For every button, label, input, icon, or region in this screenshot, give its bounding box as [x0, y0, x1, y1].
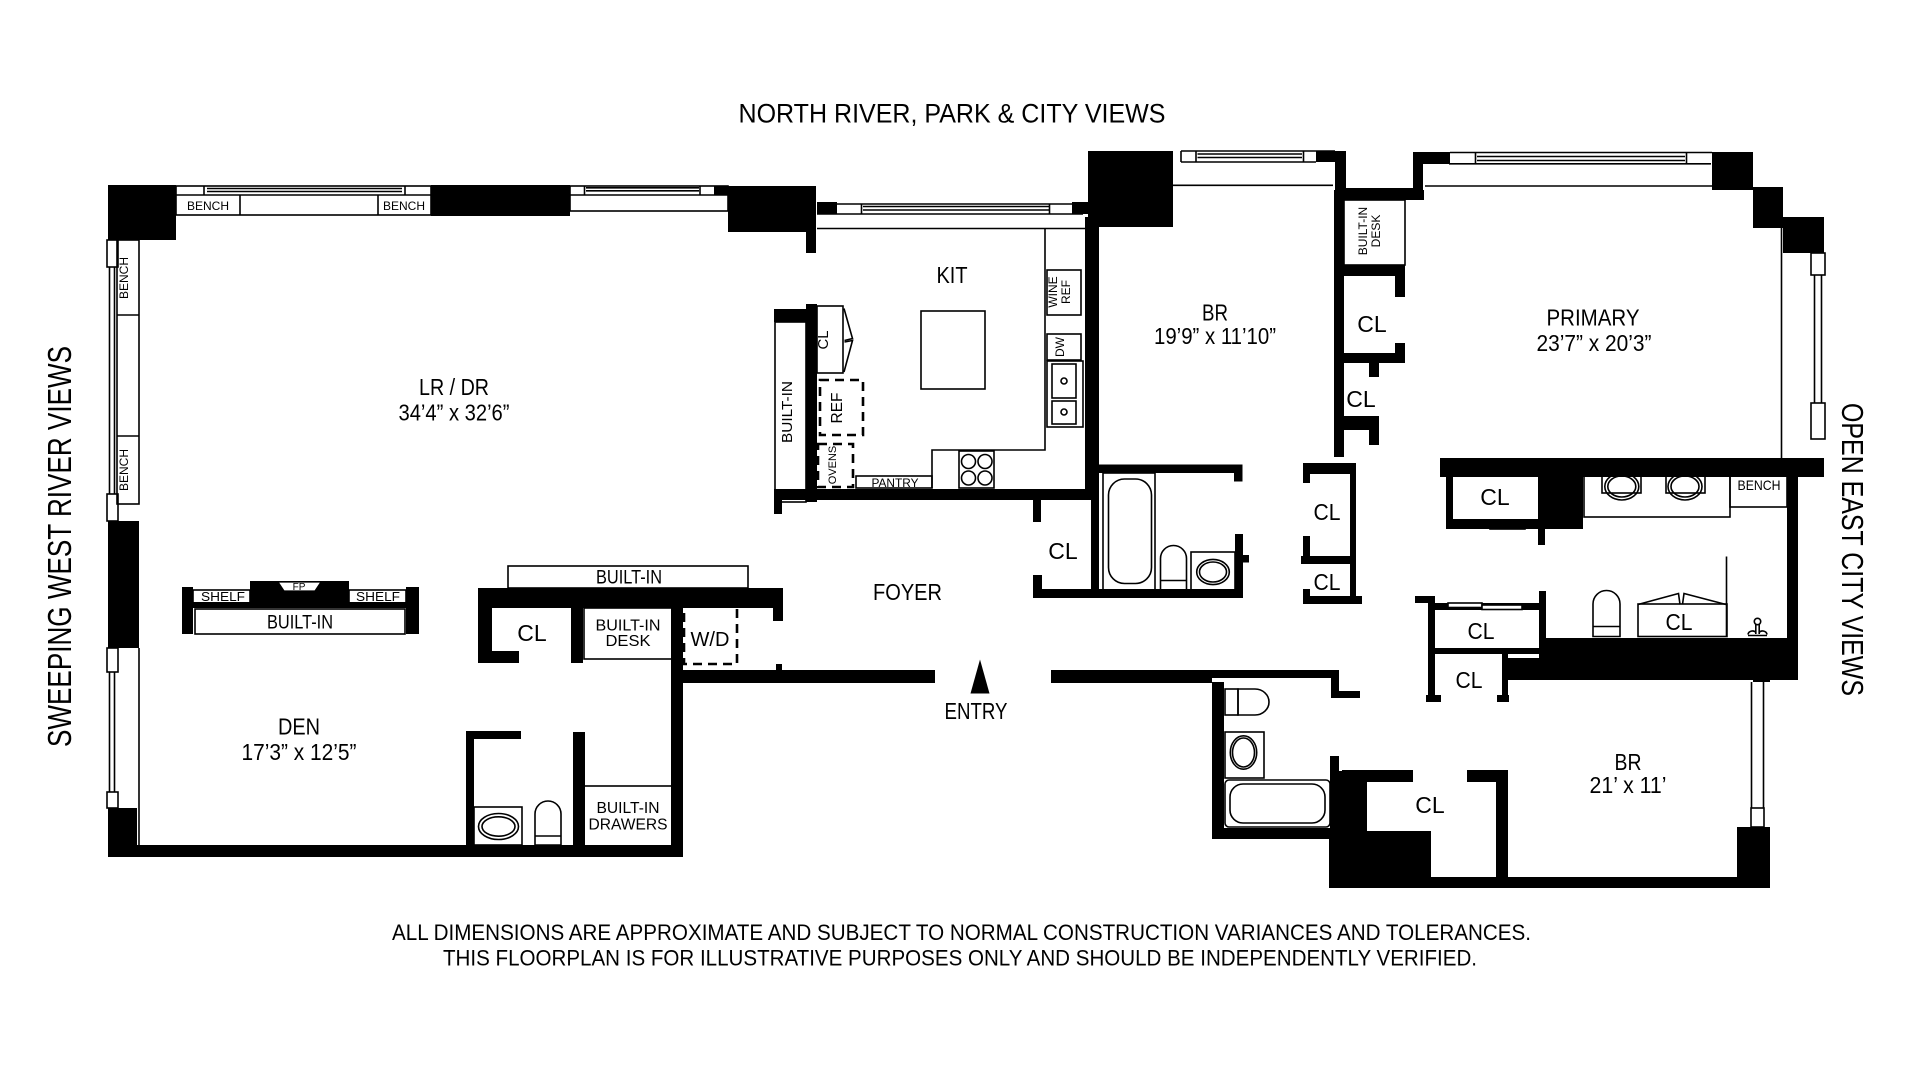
svg-text:ENTRY: ENTRY: [945, 698, 1008, 724]
svg-text:BUILT-IN: BUILT-IN: [267, 613, 333, 634]
svg-text:CL: CL: [1480, 484, 1510, 510]
svg-text:REF: REF: [829, 392, 846, 423]
svg-text:DEN: DEN: [278, 714, 320, 740]
svg-text:BENCH: BENCH: [1738, 477, 1781, 493]
svg-text:BUILT-IN: BUILT-IN: [596, 618, 661, 635]
svg-text:21’ x 11’: 21’ x 11’: [1590, 772, 1667, 798]
svg-text:PANTRY: PANTRY: [872, 478, 919, 490]
svg-text:ALL DIMENSIONS ARE APPROXIMATE: ALL DIMENSIONS ARE APPROXIMATE AND SUBJE…: [392, 920, 1531, 945]
svg-text:CL: CL: [1346, 386, 1376, 412]
svg-text:SWEEPING WEST RIVER VIEWS: SWEEPING WEST RIVER VIEWS: [41, 346, 78, 747]
svg-text:BENCH: BENCH: [187, 199, 229, 213]
svg-text:W/D: W/D: [691, 629, 730, 651]
svg-text:CL: CL: [1048, 538, 1078, 564]
svg-text:BUILT-IN: BUILT-IN: [597, 800, 660, 817]
svg-text:23’7” x 20’3”: 23’7” x 20’3”: [1537, 330, 1652, 356]
svg-text:REF: REF: [1059, 280, 1073, 304]
svg-text:CL: CL: [517, 620, 547, 646]
svg-text:CL: CL: [1456, 667, 1483, 693]
svg-text:BUILT-IN: BUILT-IN: [1356, 207, 1370, 255]
svg-text:CL: CL: [1314, 499, 1341, 525]
svg-text:BENCH: BENCH: [383, 199, 425, 213]
svg-text:SHELF: SHELF: [356, 589, 400, 604]
svg-text:CL: CL: [1666, 609, 1693, 635]
svg-text:17’3” x 12’5”: 17’3” x 12’5”: [242, 739, 357, 765]
svg-text:FOYER: FOYER: [873, 579, 942, 605]
svg-text:DRAWERS: DRAWERS: [589, 817, 668, 834]
svg-text:FP: FP: [293, 582, 306, 593]
svg-text:19’9” x 11’10”: 19’9” x 11’10”: [1154, 323, 1276, 349]
svg-text:NORTH RIVER, PARK & CITY VIEWS: NORTH RIVER, PARK & CITY VIEWS: [739, 99, 1166, 129]
svg-text:CL: CL: [1415, 792, 1445, 818]
svg-text:LR / DR: LR / DR: [419, 374, 489, 400]
svg-text:KIT: KIT: [937, 262, 968, 288]
svg-text:THIS FLOORPLAN IS FOR ILLUSTRA: THIS FLOORPLAN IS FOR ILLUSTRATIVE PURPO…: [443, 946, 1477, 971]
svg-text:CL: CL: [1314, 569, 1341, 595]
svg-text:SHELF: SHELF: [201, 589, 245, 604]
svg-text:BR: BR: [1202, 300, 1228, 326]
svg-text:CL: CL: [816, 331, 832, 350]
svg-text:BUILT-IN: BUILT-IN: [779, 381, 796, 443]
svg-text:BENCH: BENCH: [117, 449, 131, 491]
svg-text:34’4” x 32’6”: 34’4” x 32’6”: [399, 400, 510, 426]
svg-text:OPEN EAST CITY VIEWS: OPEN EAST CITY VIEWS: [1835, 403, 1870, 696]
svg-text:DESK: DESK: [606, 633, 651, 650]
svg-text:CL: CL: [1468, 618, 1495, 644]
svg-text:BUILT-IN: BUILT-IN: [596, 568, 662, 589]
svg-text:BENCH: BENCH: [117, 257, 131, 299]
svg-text:WINE: WINE: [1046, 276, 1060, 307]
svg-text:CL: CL: [1357, 311, 1387, 337]
svg-text:OVENS: OVENS: [827, 446, 839, 485]
svg-text:PRIMARY: PRIMARY: [1547, 305, 1640, 331]
svg-text:DESK: DESK: [1369, 215, 1383, 248]
svg-text:DW: DW: [1053, 336, 1067, 357]
